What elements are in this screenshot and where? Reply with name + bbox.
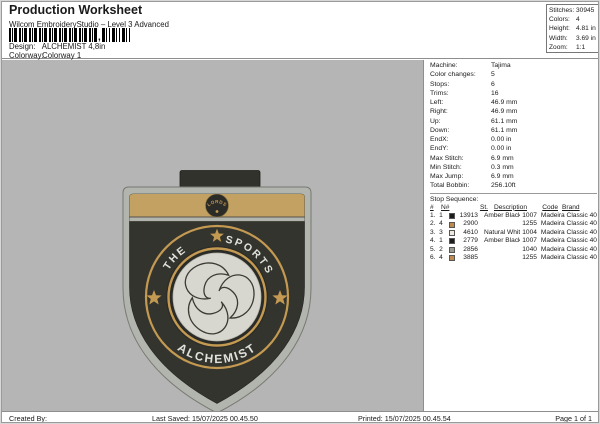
machine-row: Left:46.9 mm <box>430 98 598 107</box>
machine-row: Total Bobbin:256.10ft <box>430 181 598 190</box>
machine-row-value: 6.9 mm <box>491 172 598 181</box>
page-number: Page 1 of 1 <box>555 414 592 423</box>
thread-code: 1007 <box>520 212 537 220</box>
stitch-count: 2900 <box>457 220 480 228</box>
summary-row: Colors:4 <box>549 15 596 24</box>
table-row: 3.34610Natural White1004Madeira Classic … <box>430 229 597 237</box>
thread-color-swatch <box>449 238 455 244</box>
machine-row: Machine:Tajima <box>430 61 598 70</box>
thread-color-swatch <box>449 255 455 261</box>
machine-row: Color changes:5 <box>430 70 598 79</box>
machine-row: Max Stitch:6.9 mm <box>430 154 598 163</box>
thread-brand: Madeira Classic 40 <box>537 212 597 220</box>
thread-code: 1255 <box>520 254 537 262</box>
machine-row-value: 5 <box>491 70 598 79</box>
thread-brand: Madeira Classic 40 <box>537 246 597 254</box>
thread-code: 1040 <box>520 246 537 254</box>
machine-row-value: 0.3 mm <box>491 163 598 172</box>
machine-row-label: Total Bobbin: <box>430 181 491 190</box>
stop-number: 3. <box>430 229 439 237</box>
machine-row-value: 61.1 mm <box>491 117 598 126</box>
design-row: Design: ALCHEMIST 4,8in <box>9 42 105 51</box>
col-header-num: # <box>430 204 441 212</box>
machine-row-label: Down: <box>430 126 491 135</box>
stitch-count: 13913 <box>457 212 480 220</box>
summary-value: 30945 <box>576 6 596 15</box>
summary-label: Stitches: <box>549 6 576 15</box>
design-label: Design: <box>9 42 40 51</box>
barcode: , <box>9 28 132 43</box>
machine-row-label: Color changes: <box>430 70 491 79</box>
page-title: Production Worksheet <box>9 3 142 17</box>
needle-number: 1 <box>439 212 449 220</box>
machine-list: Machine:TajimaColor changes:5Stops:6Trim… <box>430 61 598 191</box>
barcode-bars-left <box>9 28 97 42</box>
colorway-label: Colorway: <box>9 51 40 60</box>
stitch-count: 2856 <box>457 246 480 254</box>
col-header-stitches: St. <box>463 204 490 212</box>
swatch-cell <box>449 222 457 228</box>
machine-row: Right:46.9 mm <box>430 107 598 116</box>
machine-row-label: EndY: <box>430 144 491 153</box>
needle-number: 2 <box>439 246 449 254</box>
swatch-cell <box>449 213 457 219</box>
stop-sequence-header-row: # N# St. Description Code Brand <box>430 204 597 212</box>
summary-value: 1:1 <box>576 43 596 52</box>
machine-row: Up:61.1 mm <box>430 117 598 126</box>
summary-label: Zoom: <box>549 43 576 52</box>
colorway-value: Colorway 1 <box>42 51 81 60</box>
thread-color-swatch <box>449 247 455 253</box>
col-header-needle: N# <box>441 204 453 212</box>
summary-label: Height: <box>549 24 576 33</box>
summary-label: Colors: <box>549 15 576 24</box>
machine-info-panel: Machine:TajimaColor changes:5Stops:6Trim… <box>425 60 598 411</box>
thread-brand: Madeira Classic 40 <box>537 229 597 237</box>
machine-row-label: Stops: <box>430 80 491 89</box>
thread-code: 1255 <box>520 220 537 228</box>
last-saved-label: Last Saved: 15/07/2025 00.45.50 <box>152 414 258 423</box>
machine-row-value: 61.1 mm <box>491 126 598 135</box>
thread-description: Natural White <box>480 229 520 237</box>
embroidery-badge: LORDS THE SPORTS ALCHEMIST <box>121 170 315 416</box>
swatch-cell <box>449 255 457 261</box>
machine-row-value: Tajima <box>491 61 598 70</box>
needle-number: 4 <box>439 254 449 262</box>
machine-row-value: 0.00 in <box>491 144 598 153</box>
stop-number: 4. <box>430 237 439 245</box>
thread-code: 1007 <box>520 237 537 245</box>
machine-row: EndY:0.00 in <box>430 144 598 153</box>
thread-color-swatch <box>449 213 455 219</box>
design-value: ALCHEMIST 4,8in <box>42 42 106 51</box>
machine-row-value: 0.00 in <box>491 135 598 144</box>
machine-row: Min Stitch:0.3 mm <box>430 163 598 172</box>
machine-row: Trims:16 <box>430 89 598 98</box>
thread-description: Amber Black <box>480 212 520 220</box>
machine-row: EndX:0.00 in <box>430 135 598 144</box>
needle-number: 4 <box>439 220 449 228</box>
machine-row-label: Left: <box>430 98 491 107</box>
stop-sequence-rows: 1.113913Amber Black1007Madeira Classic 4… <box>430 212 597 262</box>
machine-row-label: Max Stitch: <box>430 154 491 163</box>
machine-row-label: Up: <box>430 117 491 126</box>
thread-brand: Madeira Classic 40 <box>537 220 597 228</box>
machine-row-value: 46.9 mm <box>491 98 598 107</box>
machine-row: Stops:6 <box>430 80 598 89</box>
machine-row: Down:61.1 mm <box>430 126 598 135</box>
col-header-description: Description <box>490 204 538 212</box>
printed-label: Printed: 15/07/2025 00.45.54 <box>358 414 451 423</box>
badge-band-gray-strip <box>129 218 305 222</box>
stop-sequence-section: Stop Sequence: # N# St. Description Code… <box>430 193 597 263</box>
machine-row-label: EndX: <box>430 135 491 144</box>
machine-row-value: 256.10ft <box>491 181 598 190</box>
stop-number: 2. <box>430 220 439 228</box>
thread-color-swatch <box>449 222 455 228</box>
summary-row: Height:4.81 in <box>549 24 596 33</box>
stop-number: 1. <box>430 212 439 220</box>
machine-row-label: Right: <box>430 107 491 116</box>
band-stitch-line2 <box>129 221 305 222</box>
summary-value: 4.81 in <box>576 24 596 33</box>
summary-row: Width:3.69 in <box>549 34 596 43</box>
stop-number: 5. <box>430 246 439 254</box>
col-header-brand: Brand <box>558 204 597 212</box>
summary-row: Zoom:1:1 <box>549 43 596 52</box>
machine-row-label: Min Stitch: <box>430 163 491 172</box>
table-row: 6.438851255Madeira Classic 40 <box>430 254 597 262</box>
barcode-bars-right <box>102 28 132 42</box>
table-row: 1.113913Amber Black1007Madeira Classic 4… <box>430 212 597 220</box>
thread-description: Amber Black <box>480 237 520 245</box>
worksheet-header: Production Worksheet Wilcom EmbroiderySt… <box>2 2 598 59</box>
table-row: 2.429001255Madeira Classic 40 <box>430 220 597 228</box>
machine-row-label: Trims: <box>430 89 491 98</box>
col-header-code: Code <box>538 204 558 212</box>
summary-value: 3.69 in <box>576 34 596 43</box>
machine-row-label: Max Jump: <box>430 172 491 181</box>
thread-brand: Madeira Classic 40 <box>537 254 597 262</box>
swatch-cell <box>449 230 457 236</box>
stitch-count: 4610 <box>457 229 480 237</box>
machine-row-value: 16 <box>491 89 598 98</box>
swatch-cell <box>449 247 457 253</box>
production-worksheet-page: Production Worksheet Wilcom EmbroiderySt… <box>1 1 599 423</box>
table-row: 5.228561040Madeira Classic 40 <box>430 246 597 254</box>
stitch-count: 2779 <box>457 237 480 245</box>
created-by-label: Created By: <box>9 414 47 423</box>
summary-row: Stitches:30945 <box>549 6 596 15</box>
worksheet-footer: Created By: Last Saved: 15/07/2025 00.45… <box>2 411 598 422</box>
summary-value: 4 <box>576 15 596 24</box>
colorway-row: Colorway: Colorway 1 <box>9 51 81 60</box>
summary-box: Stitches:30945Colors:4Height:4.81 inWidt… <box>546 4 599 53</box>
ball <box>173 253 261 341</box>
needle-number: 3 <box>439 229 449 237</box>
thread-brand: Madeira Classic 40 <box>537 237 597 245</box>
design-preview-area: LORDS THE SPORTS ALCHEMIST <box>2 60 424 411</box>
stop-number: 6. <box>430 254 439 262</box>
thread-color-swatch <box>449 230 455 236</box>
machine-row-value: 6 <box>491 80 598 89</box>
table-row: 4.12779Amber Black1007Madeira Classic 40 <box>430 237 597 245</box>
swatch-cell <box>449 238 457 244</box>
thread-code: 1004 <box>520 229 537 237</box>
machine-row: Max Jump:6.9 mm <box>430 172 598 181</box>
summary-label: Width: <box>549 34 576 43</box>
stitch-count: 3885 <box>457 254 480 262</box>
stop-sequence-title: Stop Sequence: <box>430 195 597 204</box>
machine-row-value: 6.9 mm <box>491 154 598 163</box>
machine-row-label: Machine: <box>430 61 491 70</box>
band-emblem-dot <box>216 210 219 213</box>
machine-row-value: 46.9 mm <box>491 107 598 116</box>
needle-number: 1 <box>439 237 449 245</box>
